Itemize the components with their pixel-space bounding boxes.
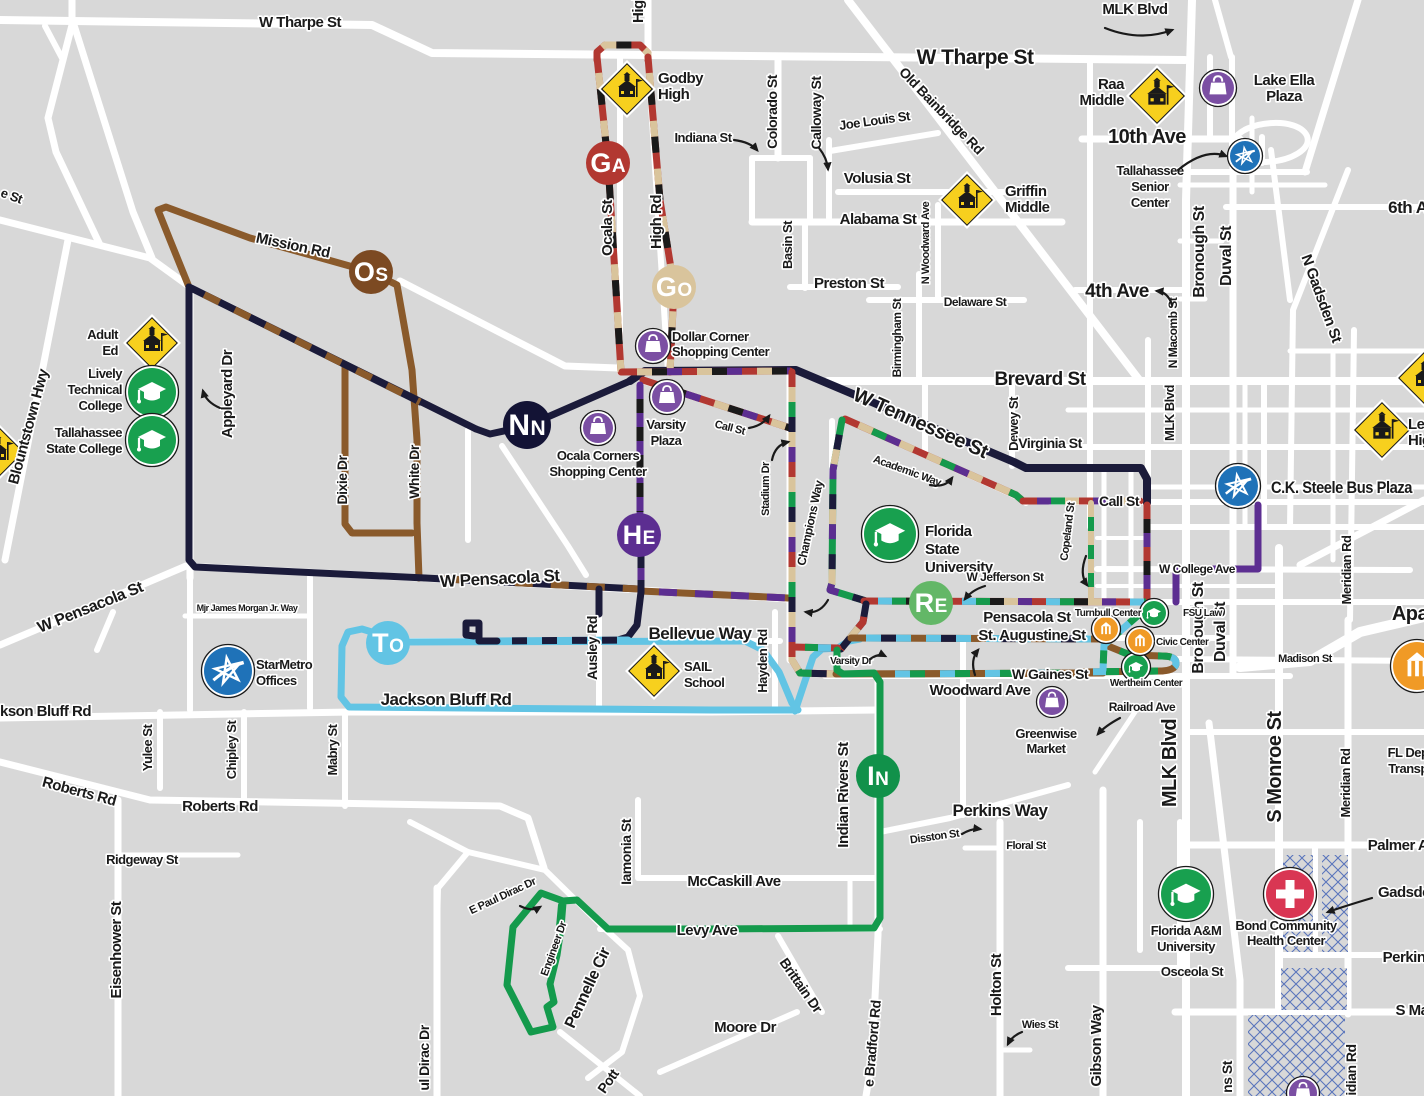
svg-text:Chipley St: Chipley St bbox=[224, 720, 239, 780]
svg-text:ul Dirac Dr: ul Dirac Dr bbox=[416, 1024, 432, 1090]
svg-text:Wies St: Wies St bbox=[1022, 1019, 1059, 1031]
svg-text:Bronough St: Bronough St bbox=[1191, 205, 1208, 298]
svg-text:High: High bbox=[658, 86, 690, 103]
svg-text:N Woodward Ave: N Woodward Ave bbox=[920, 201, 932, 284]
svg-text:Basin St: Basin St bbox=[780, 220, 795, 269]
svg-text:Lively: Lively bbox=[88, 366, 123, 381]
svg-text:Varsity: Varsity bbox=[646, 417, 686, 432]
svg-text:Gadsden: Gadsden bbox=[1378, 884, 1424, 901]
svg-text:Adult: Adult bbox=[87, 327, 119, 342]
svg-text:Hayden Rd: Hayden Rd bbox=[755, 629, 770, 693]
svg-text:SAIL: SAIL bbox=[684, 659, 712, 674]
svg-text:Indiana St: Indiana St bbox=[674, 130, 732, 145]
svg-text:Varsity Dr: Varsity Dr bbox=[830, 656, 872, 667]
svg-text:S Ma: S Ma bbox=[1395, 1002, 1424, 1019]
svg-text:Perkins Way: Perkins Way bbox=[953, 801, 1049, 820]
svg-text:10th Ave: 10th Ave bbox=[1108, 126, 1186, 148]
svg-text:Duval St: Duval St bbox=[1218, 225, 1235, 286]
svg-text:Appleyard Dr: Appleyard Dr bbox=[219, 349, 236, 438]
svg-text:University: University bbox=[1157, 939, 1216, 954]
svg-text:Lake Ella: Lake Ella bbox=[1254, 72, 1316, 89]
svg-text:Ausley Rd: Ausley Rd bbox=[584, 616, 600, 680]
svg-text:Meridian Rd: Meridian Rd bbox=[1338, 748, 1353, 817]
svg-text:Preston St: Preston St bbox=[814, 275, 885, 292]
svg-text:High Rd: High Rd bbox=[648, 195, 665, 249]
svg-text:Birmingham St: Birmingham St bbox=[890, 298, 904, 377]
svg-text:Perkins: Perkins bbox=[1383, 949, 1424, 966]
svg-text:Plaza: Plaza bbox=[1266, 88, 1303, 105]
svg-text:Offices: Offices bbox=[256, 673, 297, 688]
svg-text:Pensacola St: Pensacola St bbox=[983, 609, 1071, 626]
svg-text:Virginia St: Virginia St bbox=[1018, 435, 1082, 451]
svg-text:Mjr James Morgan Jr. Way: Mjr James Morgan Jr. Way bbox=[197, 603, 298, 613]
svg-text:White Dr: White Dr bbox=[406, 444, 422, 499]
svg-text:Tallahassee: Tallahassee bbox=[1116, 163, 1184, 178]
svg-text:Center: Center bbox=[1131, 195, 1170, 210]
svg-text:FSU Law: FSU Law bbox=[1183, 608, 1222, 619]
svg-text:6th Av: 6th Av bbox=[1388, 198, 1424, 217]
svg-text:Roberts Rd: Roberts Rd bbox=[182, 798, 258, 815]
svg-text:Colorado St: Colorado St bbox=[764, 74, 780, 149]
svg-text:StarMetro: StarMetro bbox=[256, 657, 313, 672]
svg-text:Middle: Middle bbox=[1080, 92, 1125, 109]
svg-text:Godby: Godby bbox=[658, 70, 704, 87]
svg-text:Dixie Dr: Dixie Dr bbox=[334, 454, 350, 504]
svg-text:Osceola St: Osceola St bbox=[1161, 964, 1224, 979]
svg-text:W Tharpe St: W Tharpe St bbox=[259, 14, 342, 31]
svg-text:Moore Dr: Moore Dr bbox=[714, 1019, 777, 1036]
svg-text:Turnbull Center: Turnbull Center bbox=[1075, 608, 1142, 619]
svg-text:Railroad Ave: Railroad Ave bbox=[1109, 700, 1176, 714]
svg-text:Call St: Call St bbox=[1099, 493, 1140, 509]
svg-text:W Tharpe St: W Tharpe St bbox=[916, 46, 1034, 69]
svg-text:kson Bluff Rd: kson Bluff Rd bbox=[0, 703, 91, 720]
svg-text:Calloway St: Calloway St bbox=[808, 76, 824, 150]
svg-text:Plaza: Plaza bbox=[651, 433, 683, 448]
svg-text:MLK Blvd: MLK Blvd bbox=[1159, 719, 1181, 807]
svg-text:S Monroe St: S Monroe St bbox=[1264, 711, 1286, 823]
svg-text:Florida A&M: Florida A&M bbox=[1151, 923, 1222, 938]
svg-text:Madison St: Madison St bbox=[1278, 653, 1333, 665]
svg-text:Delaware St: Delaware St bbox=[944, 295, 1007, 309]
svg-text:Volusia St: Volusia St bbox=[844, 170, 911, 187]
svg-text:Ed: Ed bbox=[102, 343, 118, 358]
svg-text:Greenwise: Greenwise bbox=[1015, 726, 1077, 741]
svg-text:Stadium Dr: Stadium Dr bbox=[760, 461, 772, 516]
svg-text:College: College bbox=[79, 398, 123, 413]
svg-text:Yulee St: Yulee St bbox=[140, 724, 155, 772]
svg-text:Transp: Transp bbox=[1388, 761, 1424, 776]
svg-text:Tallahassee: Tallahassee bbox=[55, 425, 123, 440]
svg-text:Holton St: Holton St bbox=[988, 953, 1005, 1016]
svg-text:Jackson Bluff Rd: Jackson Bluff Rd bbox=[381, 690, 512, 709]
svg-text:Alabama St: Alabama St bbox=[840, 211, 917, 228]
svg-text:McCaskill Ave: McCaskill Ave bbox=[687, 873, 780, 890]
svg-text:Ocala St: Ocala St bbox=[599, 199, 616, 256]
svg-text:Meridian Rd: Meridian Rd bbox=[1339, 535, 1354, 604]
svg-text:Middle: Middle bbox=[1005, 199, 1050, 216]
svg-text:Wertheim Center: Wertheim Center bbox=[1110, 678, 1183, 689]
svg-text:Indian Rivers St: Indian Rivers St bbox=[835, 742, 852, 848]
svg-text:Floral St: Floral St bbox=[1006, 840, 1046, 852]
svg-text:W Jefferson St: W Jefferson St bbox=[966, 570, 1044, 584]
svg-text:High: High bbox=[1408, 432, 1424, 449]
svg-text:Griffin: Griffin bbox=[1005, 183, 1047, 200]
svg-text:Market: Market bbox=[1027, 741, 1067, 756]
svg-text:Ridgeway St: Ridgeway St bbox=[106, 852, 179, 867]
svg-text:Leon: Leon bbox=[1408, 416, 1424, 433]
svg-text:High Rd: High Rd bbox=[630, 0, 647, 23]
svg-text:Bellevue Way: Bellevue Way bbox=[649, 624, 753, 643]
svg-text:Shopping Center: Shopping Center bbox=[549, 464, 647, 479]
svg-text:Gibson Way: Gibson Way bbox=[1088, 1004, 1105, 1086]
svg-text:State: State bbox=[925, 541, 959, 558]
svg-text:Eisenhower St: Eisenhower St bbox=[108, 901, 125, 998]
svg-text:C.K. Steele Bus Plaza: C.K. Steele Bus Plaza bbox=[1271, 478, 1413, 497]
svg-text:Apa: Apa bbox=[1392, 603, 1424, 625]
svg-text:Shopping Center: Shopping Center bbox=[672, 344, 770, 359]
svg-text:Brevard St: Brevard St bbox=[994, 369, 1086, 390]
svg-text:MLK Blvd: MLK Blvd bbox=[1102, 1, 1168, 18]
svg-text:Mabry St: Mabry St bbox=[325, 723, 340, 775]
svg-text:Bronough St: Bronough St bbox=[1190, 581, 1207, 674]
svg-text:Palmer A: Palmer A bbox=[1368, 837, 1424, 854]
svg-text:Raa: Raa bbox=[1098, 76, 1125, 93]
svg-text:N Macomb St: N Macomb St bbox=[1166, 297, 1180, 368]
svg-text:Iamonia St: Iamonia St bbox=[618, 818, 634, 885]
svg-text:W College Ave: W College Ave bbox=[1159, 562, 1236, 576]
svg-text:Ocala Corners: Ocala Corners bbox=[557, 448, 640, 463]
svg-text:School: School bbox=[684, 675, 724, 690]
svg-text:State College: State College bbox=[46, 441, 122, 456]
svg-text:Levy Ave: Levy Ave bbox=[677, 922, 738, 939]
svg-text:Dollar Corner: Dollar Corner bbox=[672, 329, 749, 344]
svg-text:W Gaines St: W Gaines St bbox=[1012, 666, 1089, 682]
svg-text:Civic Center: Civic Center bbox=[1156, 637, 1209, 648]
svg-text:Florida: Florida bbox=[925, 523, 973, 540]
svg-text:MLK Blvd: MLK Blvd bbox=[1162, 384, 1177, 441]
svg-text:ns St: ns St bbox=[1219, 1060, 1235, 1093]
svg-text:Senior: Senior bbox=[1131, 179, 1169, 194]
svg-text:Health Center: Health Center bbox=[1247, 933, 1325, 948]
svg-text:4th Ave: 4th Ave bbox=[1085, 281, 1149, 302]
svg-text:Woodward Ave: Woodward Ave bbox=[930, 682, 1031, 699]
svg-text:St. Augustine St: St. Augustine St bbox=[978, 627, 1086, 644]
svg-text:Technical: Technical bbox=[67, 382, 122, 397]
svg-text:Bond Community: Bond Community bbox=[1235, 918, 1338, 933]
svg-text:idian Rd: idian Rd bbox=[1343, 1044, 1359, 1095]
svg-text:FL Dep: FL Dep bbox=[1388, 745, 1424, 760]
